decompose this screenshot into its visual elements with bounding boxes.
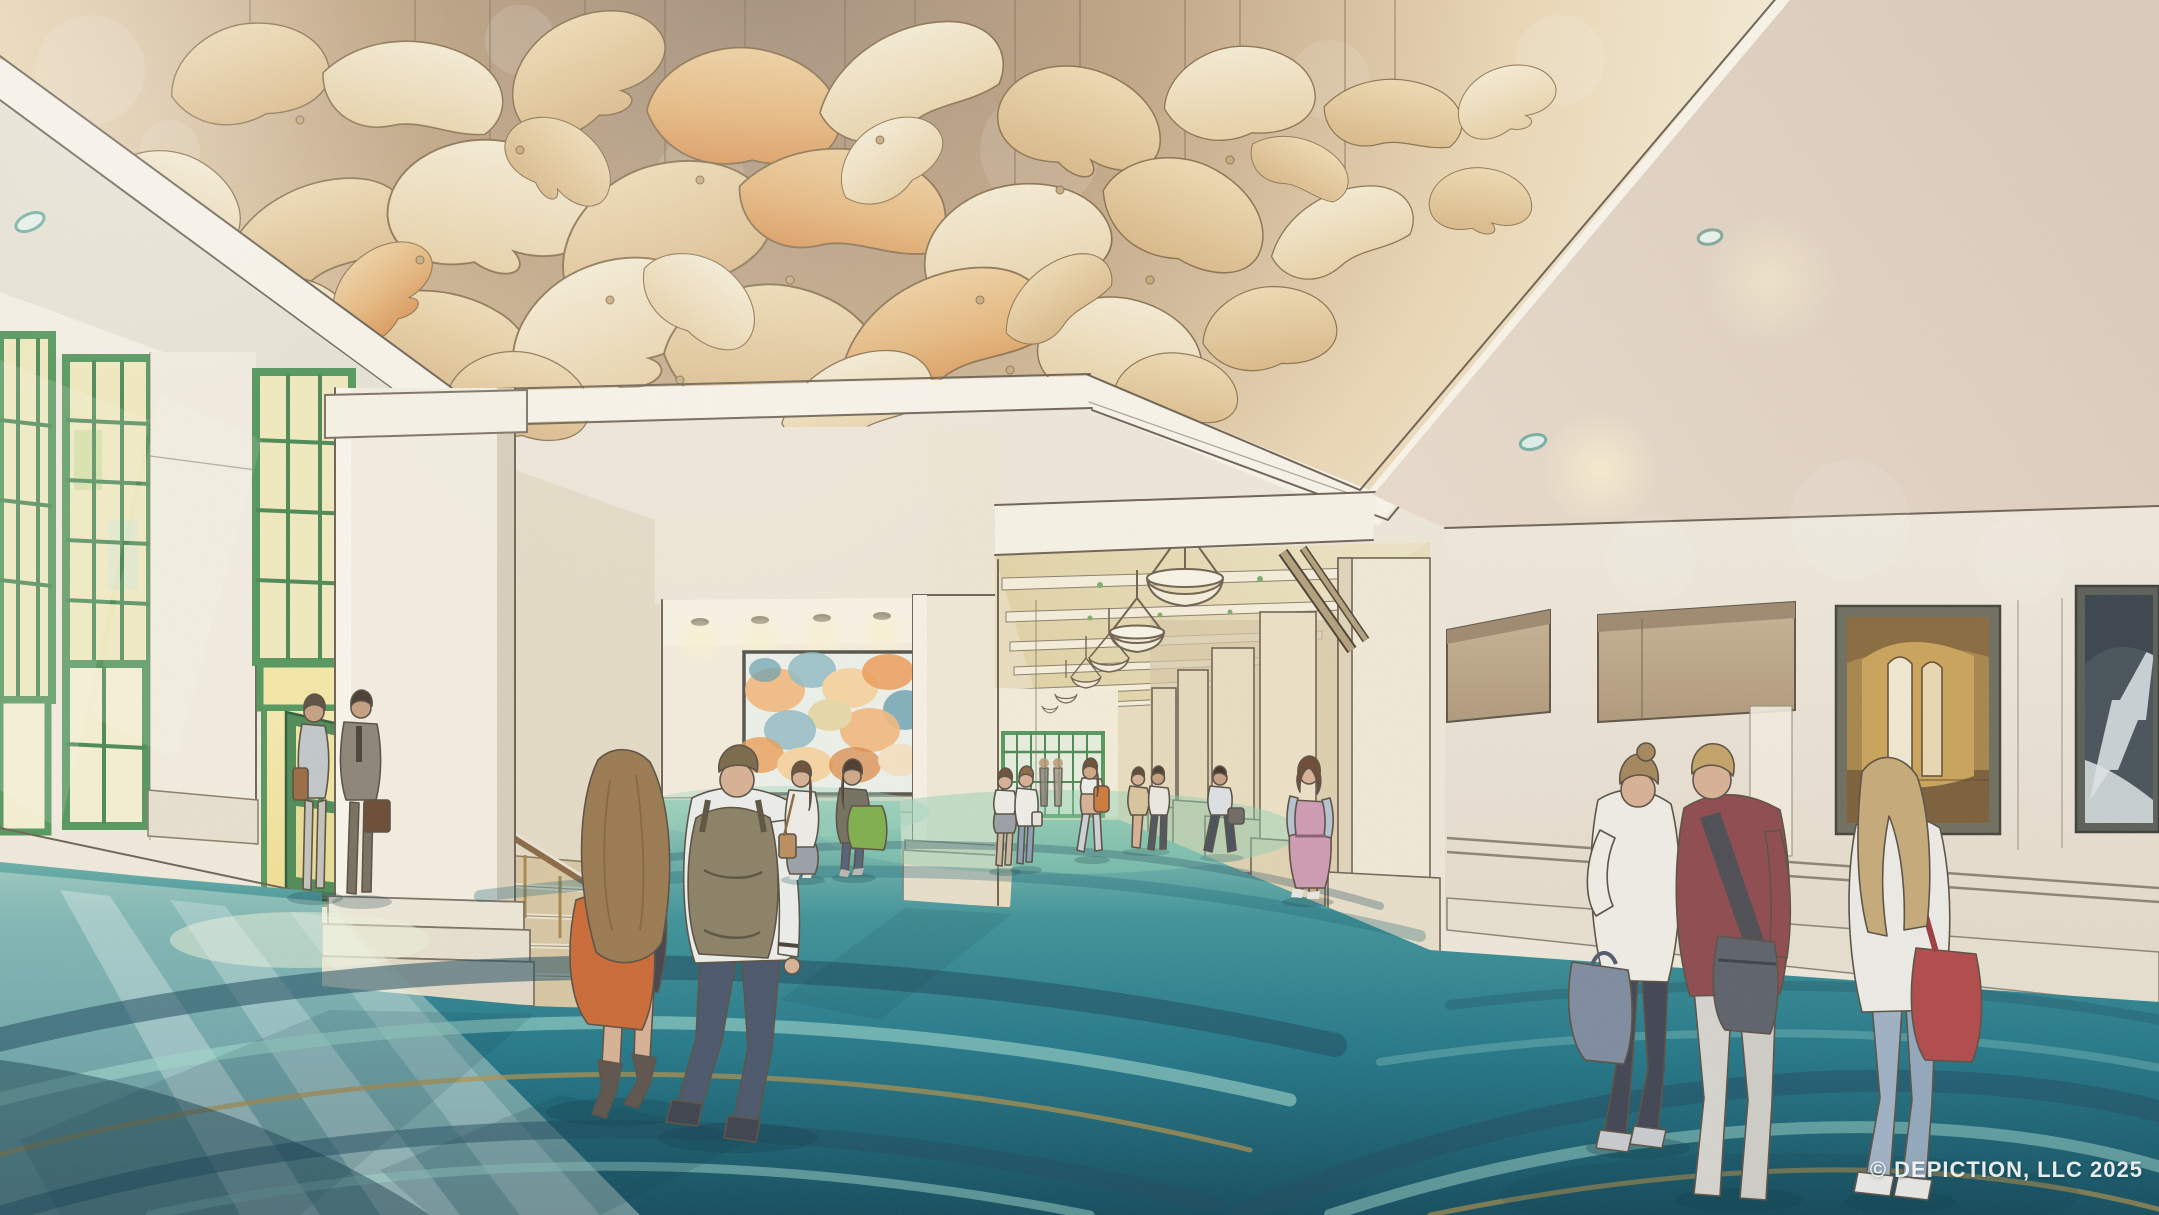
copyright-text: © DEPICTION, LLC 2025 [1870,1157,2143,1182]
rendering-canvas: © DEPICTION, LLC 2025 [0,0,2159,1215]
lobby-rendering [0,0,2159,1215]
paper-texture [0,0,2159,1215]
copyright-watermark: © DEPICTION, LLC 2025 [1870,1157,2143,1183]
